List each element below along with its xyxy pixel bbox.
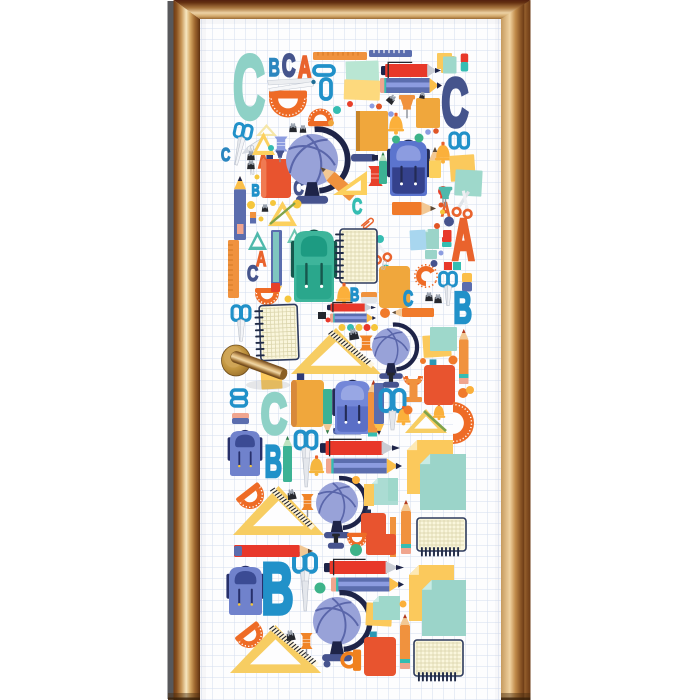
svg-text:B: B: [269, 54, 280, 82]
svg-text:A: A: [453, 208, 475, 272]
svg-text:B: B: [262, 548, 294, 629]
svg-text:B: B: [265, 436, 283, 487]
svg-text:C: C: [403, 286, 413, 311]
svg-text:C: C: [282, 47, 295, 84]
svg-text:B: B: [454, 283, 473, 333]
svg-text:C: C: [247, 263, 258, 287]
svg-text:C: C: [221, 146, 230, 166]
svg-text:C: C: [442, 64, 469, 141]
svg-text:C: C: [352, 194, 362, 219]
svg-text:B: B: [252, 182, 260, 201]
